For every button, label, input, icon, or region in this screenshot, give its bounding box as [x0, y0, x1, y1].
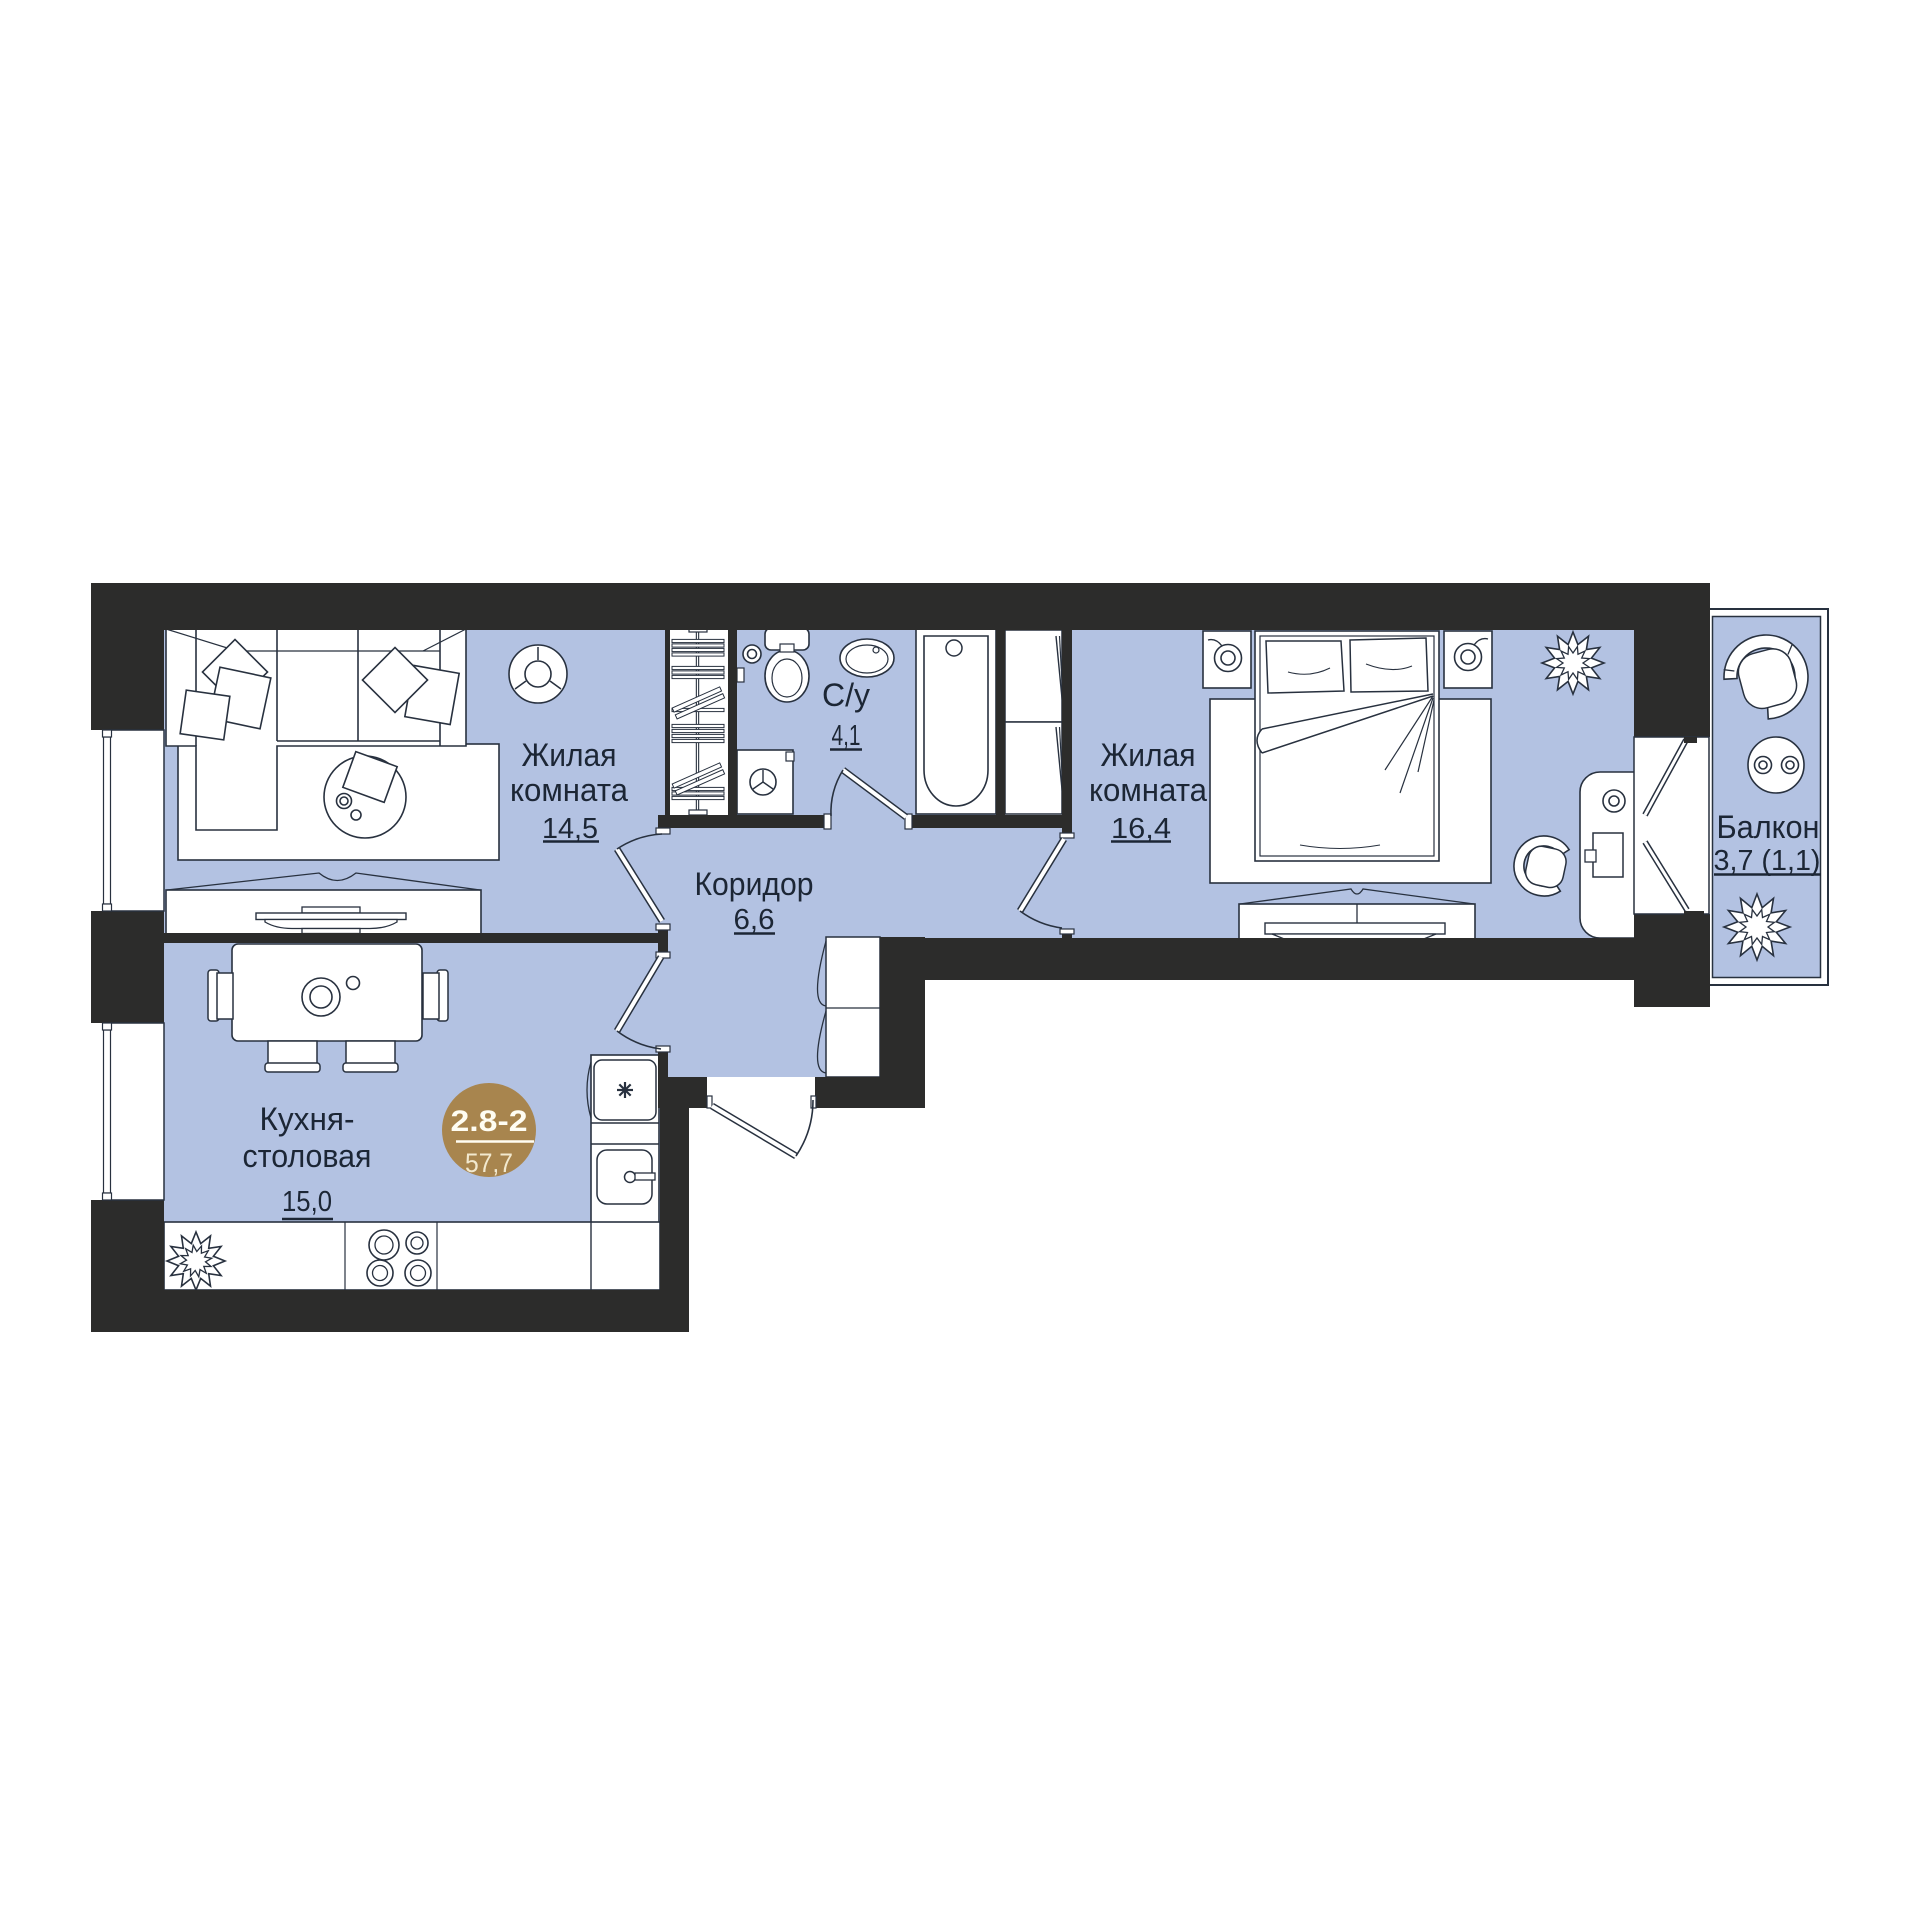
svg-text:16,4: 16,4 — [1111, 813, 1171, 845]
svg-text:С/у: С/у — [822, 677, 870, 713]
svg-text:Кухня-: Кухня- — [260, 1101, 355, 1137]
svg-text:57,7: 57,7 — [465, 1148, 513, 1178]
svg-text:3,7 (1,1): 3,7 (1,1) — [1714, 845, 1821, 877]
svg-text:комната: комната — [1089, 772, 1207, 808]
svg-text:комната: комната — [510, 772, 628, 808]
svg-text:6,6: 6,6 — [734, 904, 775, 936]
svg-text:Балкон: Балкон — [1717, 809, 1820, 845]
svg-text:4,1: 4,1 — [832, 720, 861, 752]
svg-text:14,5: 14,5 — [542, 813, 598, 845]
svg-text:2.8-2: 2.8-2 — [451, 1105, 528, 1138]
svg-text:столовая: столовая — [243, 1138, 372, 1174]
svg-text:15,0: 15,0 — [282, 1186, 332, 1218]
svg-text:Жилая: Жилая — [522, 737, 617, 773]
svg-text:Жилая: Жилая — [1101, 737, 1196, 773]
svg-text:Коридор: Коридор — [695, 866, 814, 902]
